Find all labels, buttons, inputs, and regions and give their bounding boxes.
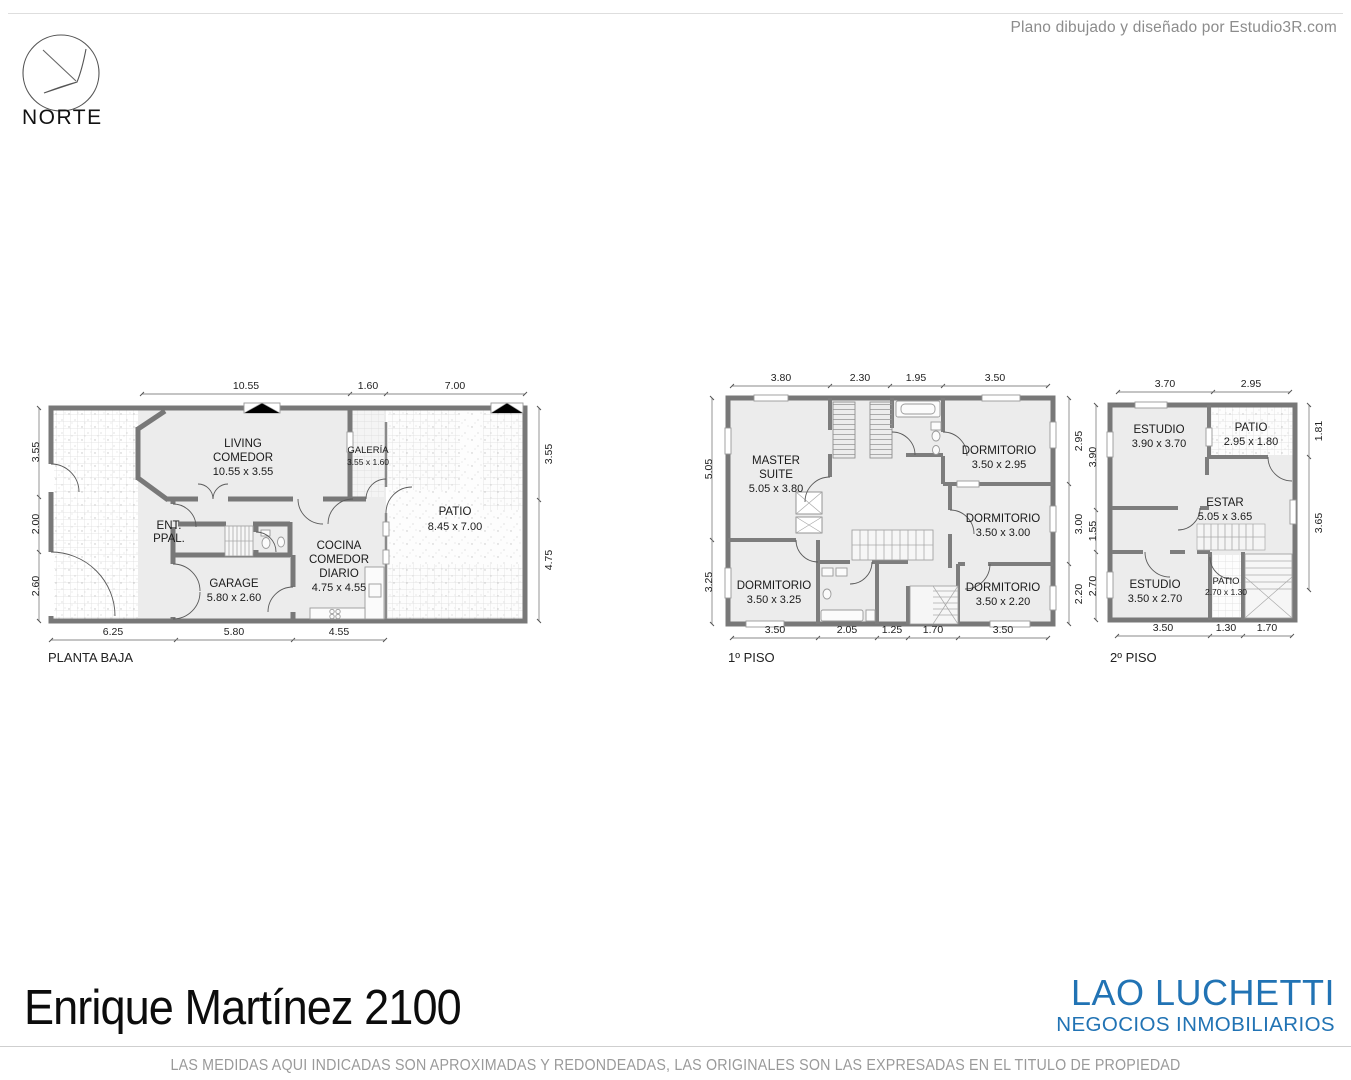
svg-text:1.55: 1.55 [1087,521,1099,542]
svg-text:PATIO: PATIO [439,506,472,518]
brand-name: LAO LUCHETTI [1056,974,1335,1012]
svg-text:3.50 x 3.00: 3.50 x 3.00 [976,527,1030,539]
svg-text:3.50 x 3.25: 3.50 x 3.25 [747,594,801,606]
svg-text:2.30: 2.30 [850,372,871,384]
svg-text:PATIO: PATIO [1235,422,1268,434]
svg-text:3.50: 3.50 [993,624,1014,636]
page-title: Enrique Martínez 2100 [24,980,461,1036]
plan-label-segundo-piso: 2º PISO [1110,650,1157,665]
pb-window-patio [491,403,523,413]
disclaimer-text: LAS MEDIDAS AQUI INDICADAS SON APROXIMAD… [54,1057,1297,1075]
svg-text:DORMITORIO: DORMITORIO [737,580,812,592]
svg-text:SUITE: SUITE [759,469,793,481]
svg-text:3.90: 3.90 [1087,447,1099,468]
svg-text:5.80: 5.80 [224,626,245,638]
svg-text:1.81: 1.81 [1313,421,1325,442]
svg-text:3.80: 3.80 [771,372,792,384]
sp-stairwell [1245,554,1292,618]
credit-text: Plano dibujado y diseñado por Estudio3R.… [1010,19,1337,37]
svg-text:GALERÍA: GALERÍA [347,445,389,456]
svg-text:2.20: 2.20 [1073,584,1085,605]
svg-text:DORMITORIO: DORMITORIO [966,513,1041,525]
svg-text:3.70: 3.70 [1155,378,1176,390]
svg-text:3.50: 3.50 [765,624,786,636]
pp-stair-main [852,530,933,560]
brand-subtitle: NEGOCIOS INMOBILIARIOS [1056,1012,1335,1038]
svg-text:ESTUDIO: ESTUDIO [1133,424,1184,436]
svg-text:1.70: 1.70 [923,624,944,636]
plan-label-planta-baja: PLANTA BAJA [48,650,133,665]
svg-text:2.70 x 1.30: 2.70 x 1.30 [1205,587,1247,597]
sp-stair-estar [1197,524,1265,550]
svg-text:DORMITORIO: DORMITORIO [962,445,1037,457]
svg-text:10.55: 10.55 [233,380,259,392]
pb-stair [225,526,253,556]
svg-text:5.05 x 3.80: 5.05 x 3.80 [749,483,803,495]
svg-text:MASTER: MASTER [752,455,800,467]
floor-plan-segundo-piso: 3.70 2.95 3.50 1.30 1.70 3.90 1.55 2.70 … [1085,372,1351,672]
floor-plan-planta-baja: 10.55 1.60 7.00 6.25 5.80 4.55 3.55 2.00… [28,372,695,672]
svg-text:2.95: 2.95 [1241,378,1262,390]
svg-text:PATIO: PATIO [1212,576,1239,587]
svg-text:3.65: 3.65 [1313,513,1325,534]
svg-text:3.50 x 2.20: 3.50 x 2.20 [976,596,1030,608]
svg-text:7.00: 7.00 [445,380,466,392]
bottom-divider [0,1046,1351,1047]
svg-text:4.75 x 4.55: 4.75 x 4.55 [312,582,366,594]
svg-text:1.30: 1.30 [1216,622,1237,634]
svg-text:6.25: 6.25 [103,626,124,638]
svg-text:2.95: 2.95 [1073,431,1085,452]
svg-text:3.50 x 2.95: 3.50 x 2.95 [972,459,1026,471]
svg-text:2.95 x 1.80: 2.95 x 1.80 [1224,436,1278,448]
svg-text:ESTAR: ESTAR [1206,497,1244,509]
floor-plan-primer-piso: 3.80 2.30 1.95 3.50 3.50 2.05 1.25 1.70 … [700,372,1080,672]
pb-window-living [244,403,280,413]
svg-text:DIARIO: DIARIO [319,568,359,580]
svg-text:2.05: 2.05 [837,624,858,636]
svg-text:COMEDOR: COMEDOR [213,452,273,464]
floor-plan-sheet: Plano dibujado y diseñado por Estudio3R.… [0,0,1351,1080]
svg-text:3.55: 3.55 [30,442,42,463]
pp-stair-up [910,586,958,624]
svg-text:3.00: 3.00 [1073,514,1085,535]
svg-text:LIVING: LIVING [224,438,262,450]
svg-text:3.55: 3.55 [543,444,555,465]
svg-text:1.95: 1.95 [906,372,927,384]
svg-text:2.60: 2.60 [30,576,42,597]
svg-text:2.70: 2.70 [1087,576,1099,597]
svg-text:2.00: 2.00 [30,514,42,535]
svg-text:10.55 x 3.55: 10.55 x 3.55 [213,466,274,478]
svg-text:1.60: 1.60 [358,380,379,392]
svg-text:3.50 x 2.70: 3.50 x 2.70 [1128,593,1182,605]
brand-block: LAO LUCHETTI NEGOCIOS INMOBILIARIOS [1056,974,1335,1038]
svg-text:3.50: 3.50 [985,372,1006,384]
svg-text:ENT.: ENT. [157,520,182,532]
svg-text:COCINA: COCINA [317,540,362,552]
compass-label: NORTE [22,106,103,130]
top-divider [8,13,1343,14]
svg-text:3.25: 3.25 [703,572,715,593]
svg-text:3.55 x 1.60: 3.55 x 1.60 [347,457,389,467]
svg-text:GARAGE: GARAGE [209,578,259,590]
svg-text:1.25: 1.25 [882,624,903,636]
svg-text:COMEDOR: COMEDOR [309,554,369,566]
svg-text:5.05 x 3.65: 5.05 x 3.65 [1198,511,1252,523]
svg-text:3.50: 3.50 [1153,622,1174,634]
svg-text:PPAL.: PPAL. [153,533,185,545]
svg-text:1.70: 1.70 [1257,622,1278,634]
plan-label-primer-piso: 1º PISO [728,650,775,665]
svg-text:4.75: 4.75 [543,550,555,571]
svg-text:5.80 x 2.60: 5.80 x 2.60 [207,592,261,604]
svg-text:4.55: 4.55 [329,626,350,638]
svg-text:ESTUDIO: ESTUDIO [1129,579,1180,591]
svg-text:DORMITORIO: DORMITORIO [966,582,1041,594]
svg-text:5.05: 5.05 [703,459,715,480]
svg-text:3.90 x 3.70: 3.90 x 3.70 [1132,438,1186,450]
svg-text:8.45 x 7.00: 8.45 x 7.00 [428,521,482,533]
